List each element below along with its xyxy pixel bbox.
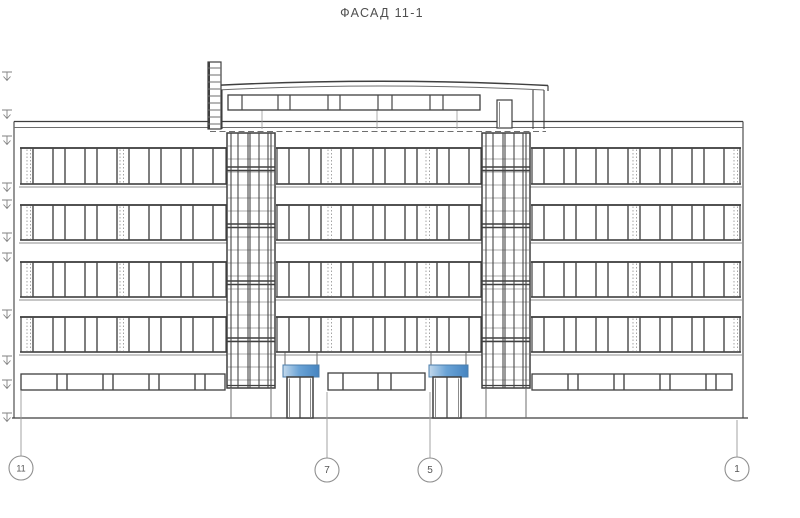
entrance-canopy <box>429 365 468 377</box>
window-band <box>275 148 483 187</box>
ground-floor <box>21 373 732 390</box>
window-band <box>275 262 483 300</box>
window-band <box>530 262 742 300</box>
window-band <box>19 262 228 300</box>
window-band <box>530 148 742 187</box>
center-transom-band <box>328 373 425 390</box>
entrance-door <box>287 377 313 418</box>
window-band <box>275 205 483 243</box>
window-band <box>530 205 742 243</box>
axis-label: 11 <box>16 464 25 474</box>
window-band <box>19 148 228 187</box>
window-band <box>275 317 483 355</box>
stair-tower <box>227 133 275 418</box>
ground-window-band <box>532 374 732 390</box>
window-band <box>19 317 228 355</box>
window-band <box>19 205 228 243</box>
facade-drawing: ФАСАД 11-1 11751 <box>0 0 800 518</box>
entrance-canopy <box>283 365 319 377</box>
window-band <box>530 317 742 355</box>
ground-window-band <box>21 374 225 390</box>
axis-label: 5 <box>427 465 433 476</box>
drawing-title: ФАСАД 11-1 <box>340 6 424 20</box>
entrance-door <box>433 377 461 418</box>
stair-tower <box>482 133 530 418</box>
axis-label: 7 <box>324 465 330 476</box>
paper-background <box>0 0 800 518</box>
roof-ladder <box>208 62 221 129</box>
drawing-canvas: ФАСАД 11-1 11751 <box>0 0 800 518</box>
axis-label: 1 <box>734 464 740 475</box>
